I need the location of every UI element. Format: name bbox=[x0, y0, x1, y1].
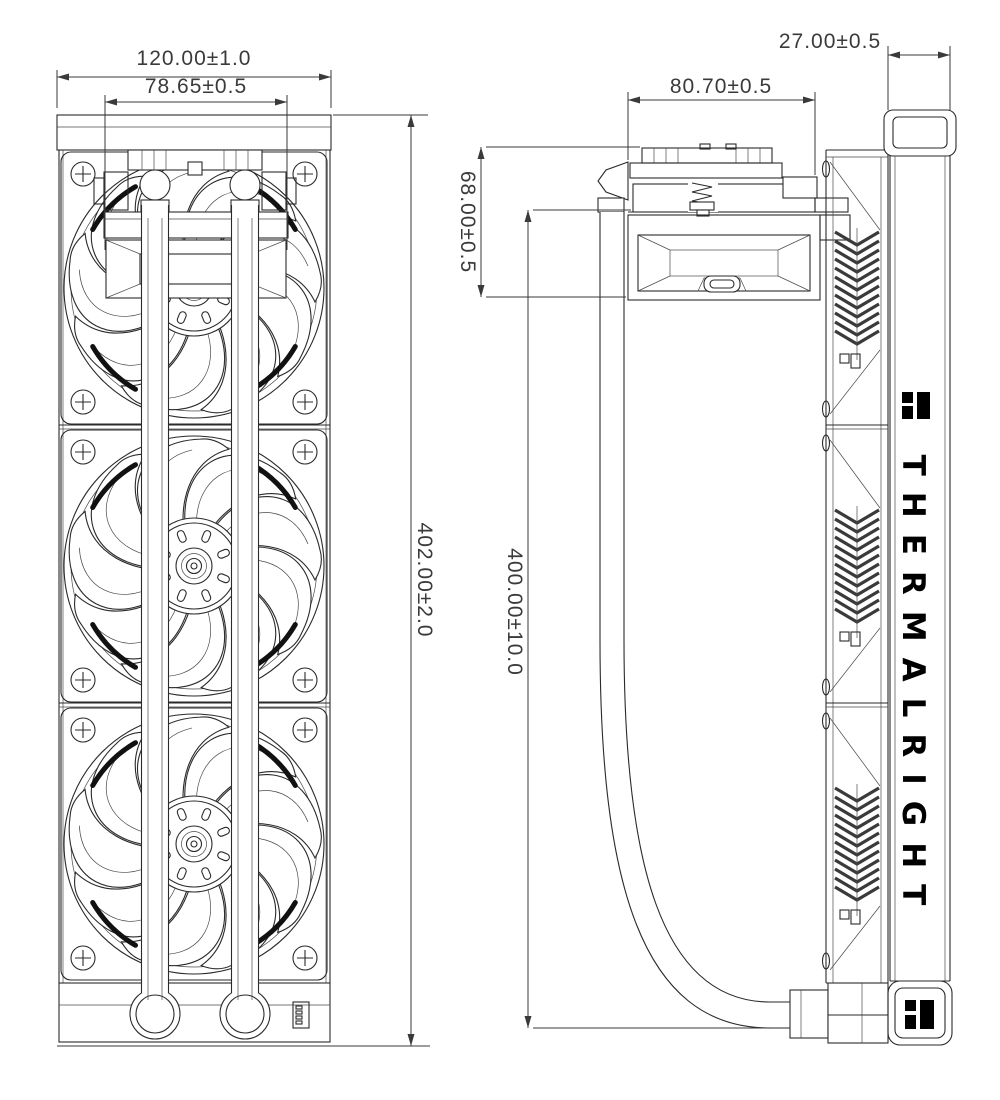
brand-text: THERMALRIGHT bbox=[893, 423, 933, 953]
dim-radiator-thickness-label: 27.00±0.5 bbox=[778, 31, 882, 53]
dim-radiator-length-label: 402.00±2.0 bbox=[413, 498, 435, 662]
dim-pump-height-label: 68.00±0.5 bbox=[456, 147, 478, 297]
bottom-tank-front bbox=[59, 983, 330, 1042]
thermalright-badge-icon bbox=[888, 981, 952, 1045]
dim-tube-length-label: 400.00±10.0 bbox=[503, 522, 525, 702]
thermalright-logo-icon bbox=[902, 392, 930, 419]
fan-stack-side-view bbox=[823, 150, 889, 983]
fan-middle bbox=[51, 428, 337, 711]
dim-pump-width-label: 80.70±0.5 bbox=[621, 76, 821, 98]
dim-radiator-width-label: 120.00±1.0 bbox=[94, 48, 294, 70]
radiator-bottom-side bbox=[828, 981, 952, 1045]
technical-drawing-aio-cooler: .ln{stroke:#2a2a2a;stroke-width:1.1;fill… bbox=[0, 0, 1000, 1100]
pump-mount-front bbox=[94, 150, 296, 298]
dim-mount-width-label: 78.65±0.5 bbox=[106, 76, 286, 98]
line-art: .ln{stroke:#2a2a2a;stroke-width:1.1;fill… bbox=[0, 0, 1000, 1100]
tube-side-view bbox=[600, 212, 828, 1038]
fan-bottom bbox=[51, 706, 337, 989]
pump-side-view bbox=[598, 144, 850, 300]
